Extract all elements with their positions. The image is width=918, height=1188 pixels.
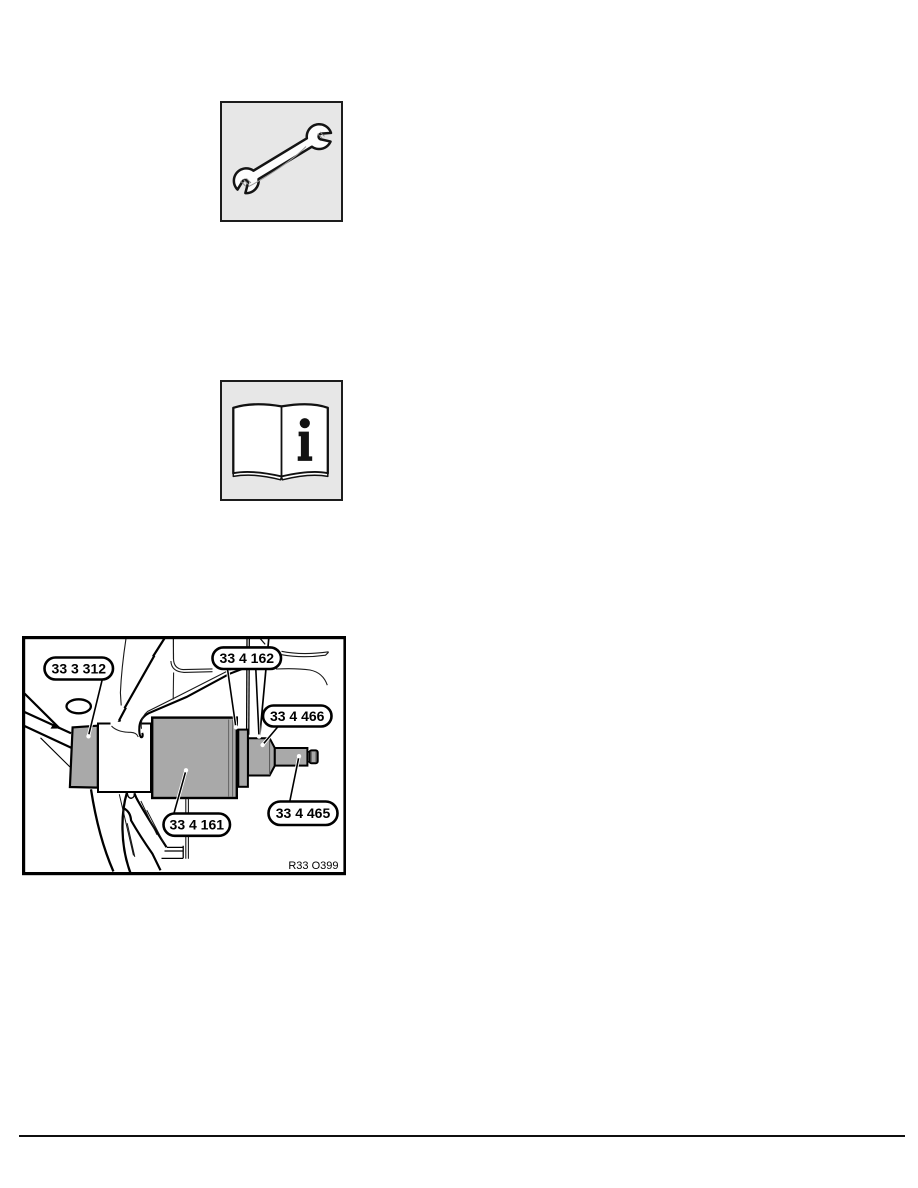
- svg-text:33 4 465: 33 4 465: [276, 805, 331, 821]
- svg-text:R33 O399: R33 O399: [288, 860, 338, 872]
- svg-text:33 3 312: 33 3 312: [52, 661, 107, 677]
- svg-text:33 4 162: 33 4 162: [220, 650, 275, 666]
- svg-text:33 4 466: 33 4 466: [270, 708, 325, 724]
- svg-text:33 4 161: 33 4 161: [170, 817, 225, 833]
